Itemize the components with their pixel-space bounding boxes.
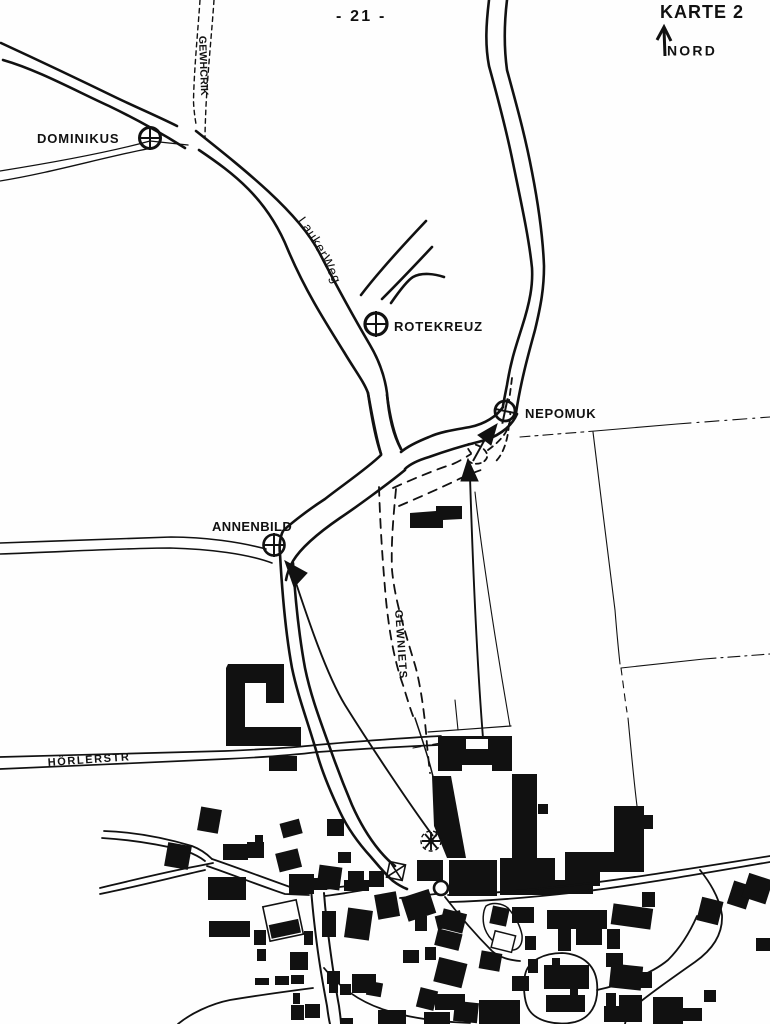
svg-text:KARTE 2: KARTE 2 — [660, 2, 744, 22]
svg-text:NORD: NORD — [667, 43, 717, 59]
svg-text:GEWHCRIK: GEWHCRIK — [196, 36, 210, 97]
svg-text:ROTEKREUZ: ROTEKREUZ — [394, 319, 483, 334]
svg-text:DOMINIKUS: DOMINIKUS — [37, 131, 120, 146]
svg-text:- 21 -: - 21 - — [336, 8, 387, 25]
svg-text:ANNENBILD: ANNENBILD — [212, 519, 292, 534]
svg-text:NEPOMUK: NEPOMUK — [525, 406, 596, 421]
